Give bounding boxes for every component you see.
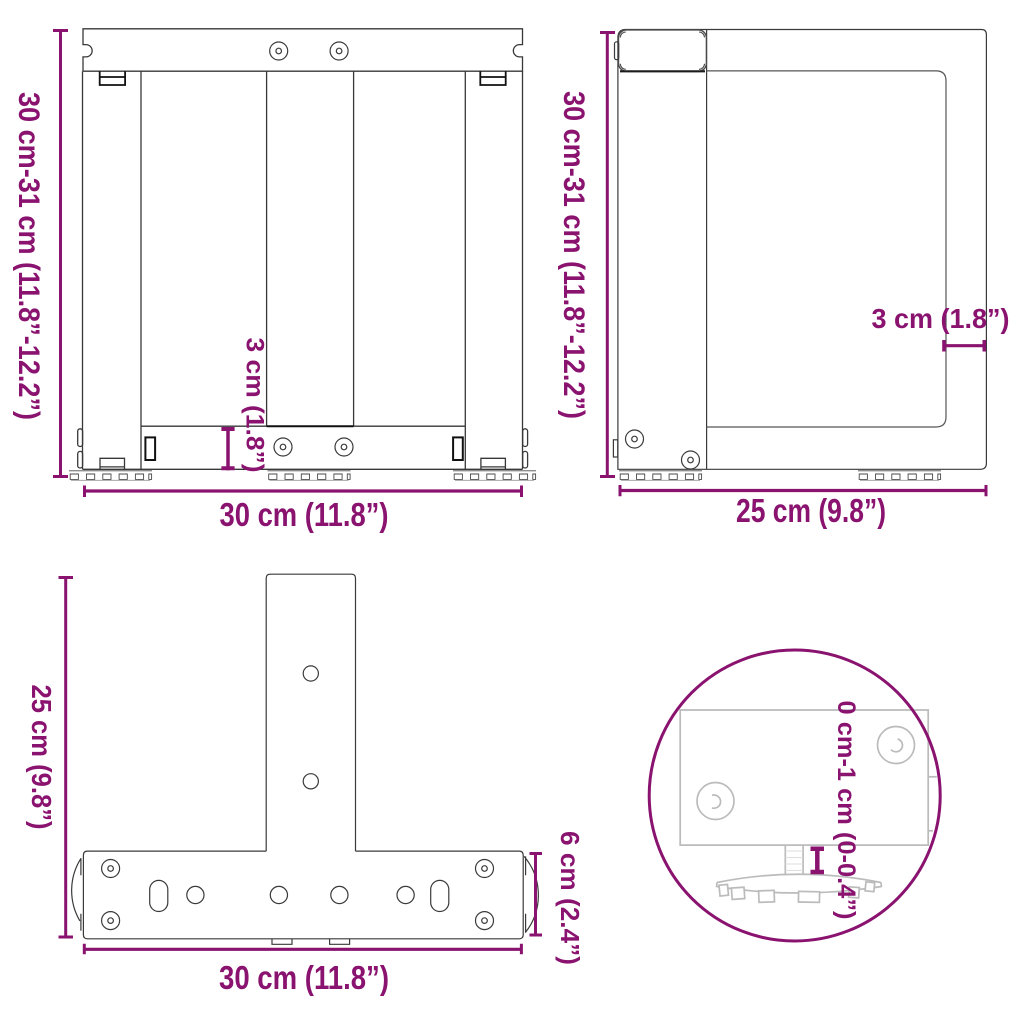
svg-text:0 cm-1 cm (0-0.4”): 0 cm-1 cm (0-0.4”) <box>832 701 860 920</box>
svg-text:30 cm-31 cm (11.8”-12.2”): 30 cm-31 cm (11.8”-12.2”) <box>557 91 590 419</box>
svg-text:30 cm-31 cm (11.8”-12.2”): 30 cm-31 cm (11.8”-12.2”) <box>12 92 45 420</box>
svg-text:6 cm (2.4”): 6 cm (2.4”) <box>555 831 585 965</box>
svg-text:3 cm (1.8”): 3 cm (1.8”) <box>872 303 1010 334</box>
svg-text:25 cm (9.8”): 25 cm (9.8”) <box>736 492 886 529</box>
svg-text:30 cm (11.8”): 30 cm (11.8”) <box>220 496 389 533</box>
svg-text:25 cm (9.8”): 25 cm (9.8”) <box>26 685 57 830</box>
svg-text:30 cm (11.8”): 30 cm (11.8”) <box>219 959 389 996</box>
svg-text:3 cm (1.8”): 3 cm (1.8”) <box>240 338 268 473</box>
